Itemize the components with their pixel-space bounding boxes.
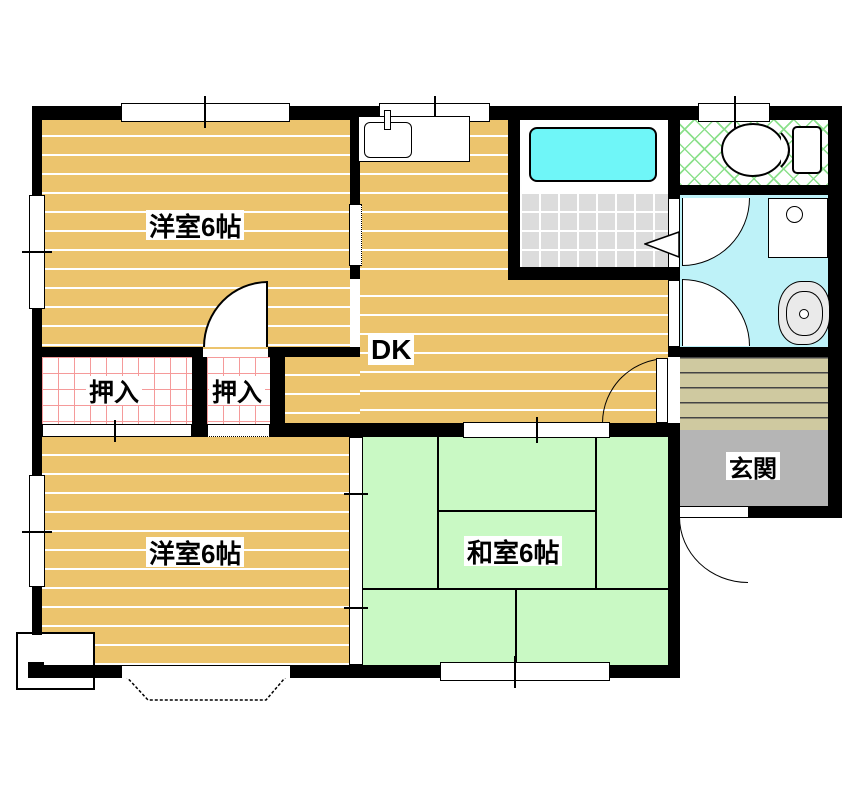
closet-left-sliding-door	[42, 424, 192, 437]
washing-machine-drain	[786, 206, 803, 223]
lavatory-door-leaf	[668, 280, 680, 347]
floor-plan: 洋室6帖 洋室6帖 和室6帖 DK 押入 押入 玄関	[0, 0, 850, 800]
toilet	[693, 119, 825, 183]
tatami-line	[595, 437, 597, 590]
room-label-western-top: 洋室6帖	[146, 210, 244, 240]
wall-below-lavatory	[668, 347, 842, 357]
wall-closet-mid	[192, 357, 207, 437]
slide-tick	[344, 493, 368, 495]
room-label-closet-right: 押入	[209, 376, 265, 405]
westtop-dk-opening	[350, 279, 360, 345]
bathtub	[529, 127, 657, 182]
slide-tick	[114, 420, 116, 442]
entrance-door-arc	[679, 517, 748, 583]
wall-toilet-bottom	[680, 185, 828, 195]
bathroom-folding-door	[644, 231, 681, 259]
tatami-line	[437, 437, 439, 590]
entrance-step-boards	[680, 357, 828, 430]
room-label-dk: DK	[368, 335, 414, 365]
wall-corner-stub	[28, 662, 44, 678]
wall-right	[828, 106, 842, 517]
slide-tick	[536, 417, 538, 443]
wall-japanese-right	[668, 423, 680, 665]
tatami-line	[437, 510, 597, 512]
dk-door-leaf	[656, 358, 668, 423]
wall-bath-bottom	[508, 267, 680, 280]
room-label-japanese: 和室6帖	[464, 536, 562, 566]
bay-window-opening	[122, 665, 290, 678]
window-bottom-japanese	[440, 662, 610, 681]
wall-westtop-right-b	[350, 265, 360, 279]
left-bay-window-box	[16, 632, 95, 690]
window-tick	[22, 531, 52, 533]
dk-floor-corridor	[285, 357, 360, 425]
tatami-line	[515, 588, 517, 665]
room-label-entrance: 玄関	[726, 452, 780, 480]
room-label-western-bottom: 洋室6帖	[146, 537, 244, 567]
window-tick	[22, 251, 52, 253]
room-divider-sliding-door	[349, 437, 363, 665]
wall-entrance-bottom	[748, 506, 842, 518]
entrance-door-leaf	[679, 506, 749, 518]
wall-mid-horizontal-b	[610, 423, 668, 437]
closet-right-sliding-door	[207, 424, 270, 437]
room-label-closet-left: 押入	[86, 376, 142, 405]
westtop-door-gap	[203, 349, 268, 357]
window-tick	[204, 96, 206, 128]
slide-tick	[344, 607, 368, 609]
wall-westtop-bottom-b	[268, 347, 360, 357]
wall-bath-left	[508, 106, 520, 280]
wall-hall-upper	[668, 106, 680, 198]
wall-mid-horizontal-a	[285, 423, 463, 437]
wall-closet-right	[270, 357, 285, 437]
kitchen-faucet	[384, 110, 391, 130]
westtop-dk-partition	[349, 204, 362, 266]
wall-westtop-bottom-a	[32, 347, 203, 357]
washbasin-drain	[799, 309, 809, 319]
window-tick	[514, 656, 516, 688]
